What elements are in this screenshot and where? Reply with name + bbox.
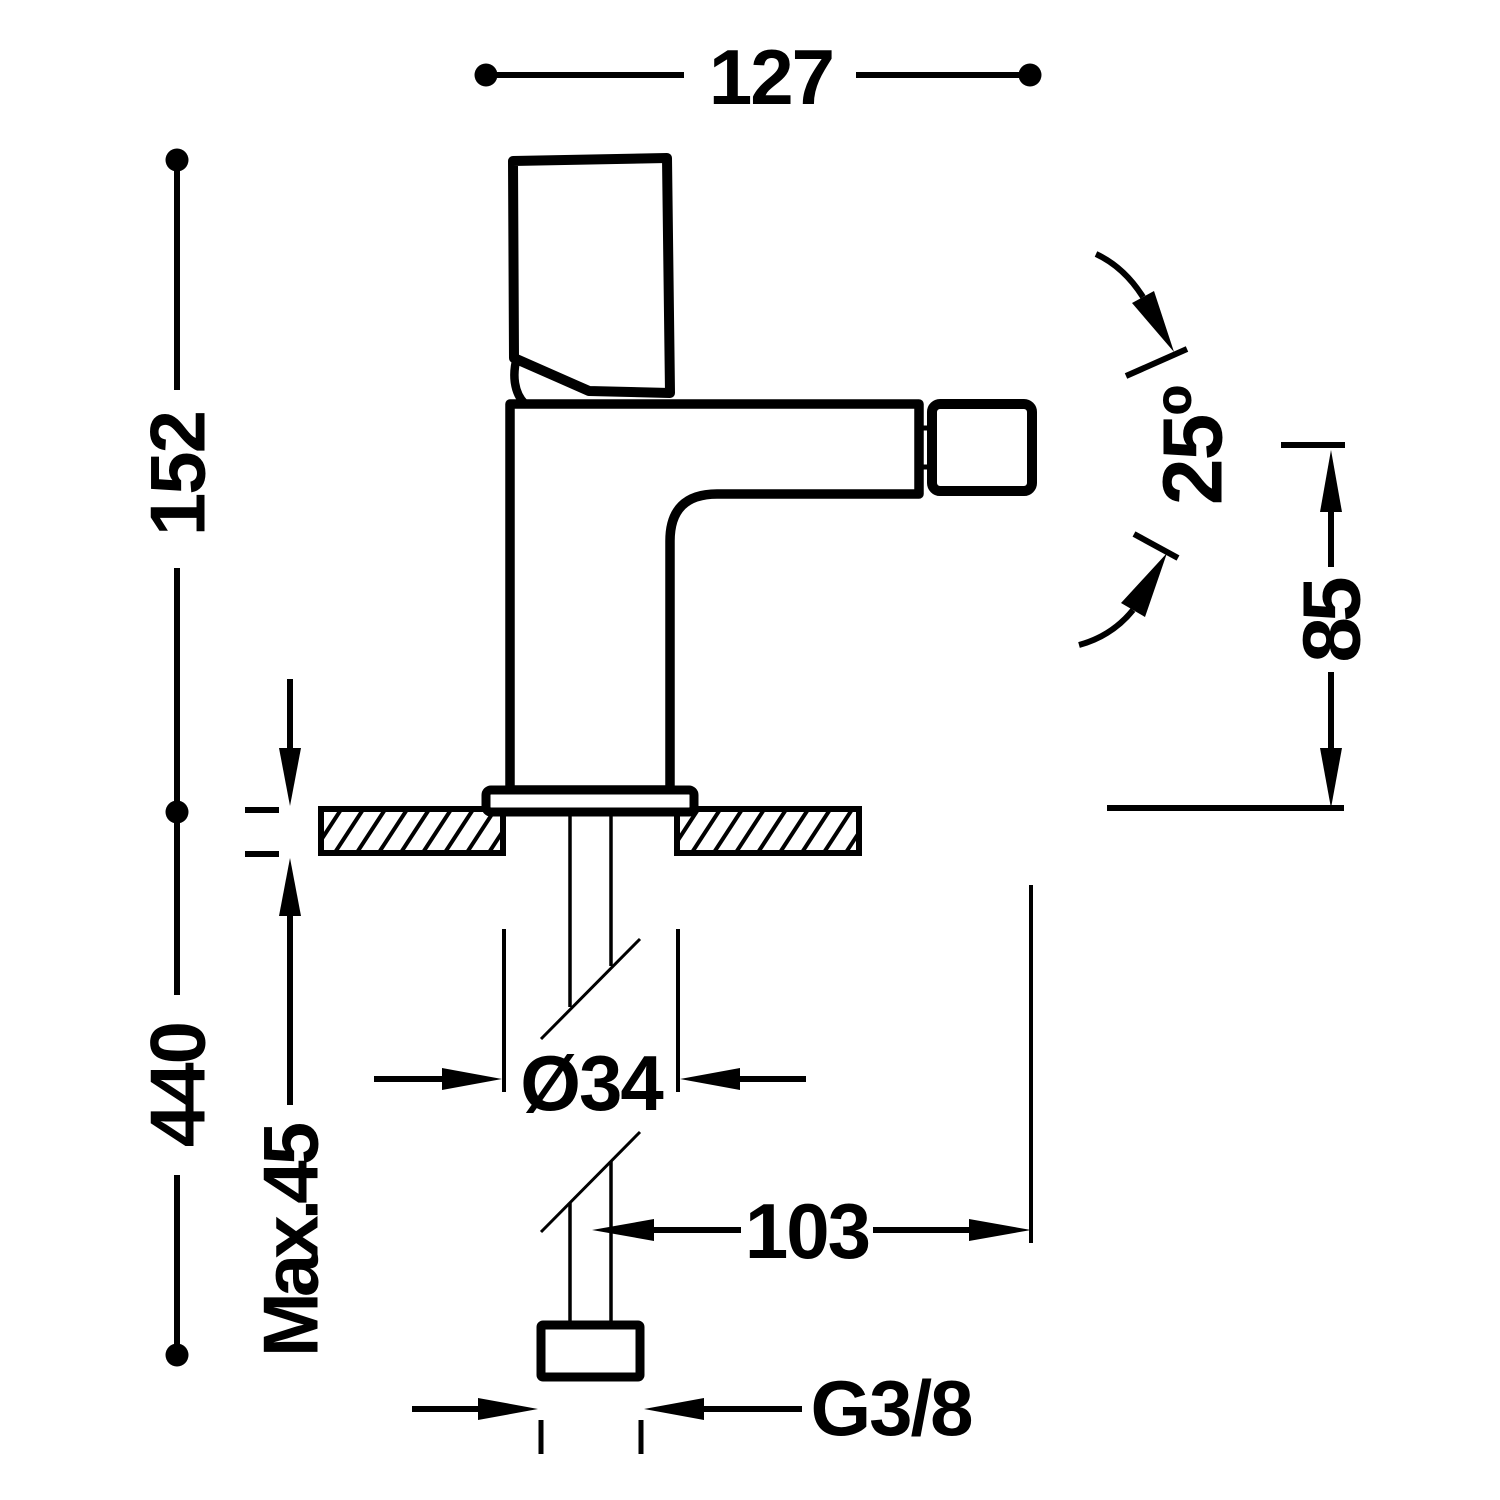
svg-text:85: 85: [1287, 578, 1378, 663]
svg-text:G3/8: G3/8: [810, 1364, 971, 1452]
svg-text:440: 440: [133, 1023, 221, 1147]
svg-text:127: 127: [709, 33, 833, 121]
svg-text:152: 152: [133, 412, 221, 536]
svg-text:25º: 25º: [1145, 386, 1239, 505]
svg-text:103: 103: [745, 1187, 869, 1275]
svg-text:Ø34: Ø34: [520, 1039, 663, 1127]
svg-text:Max.45: Max.45: [246, 1123, 334, 1357]
